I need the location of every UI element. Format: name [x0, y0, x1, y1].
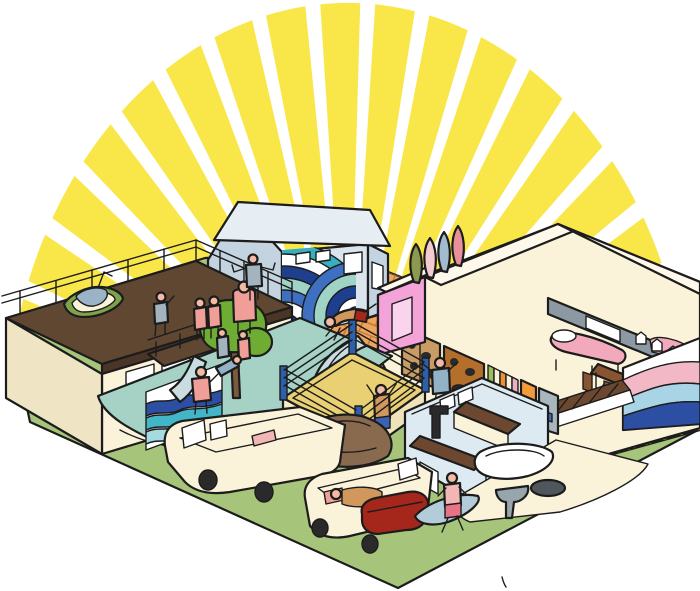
- mural-window: [296, 252, 310, 264]
- surfboard: [438, 232, 449, 272]
- wash-basin: [531, 480, 565, 496]
- van-window: [210, 420, 227, 440]
- wheel: [312, 519, 328, 537]
- surfboard: [424, 238, 435, 278]
- wheel: [255, 482, 273, 502]
- house-roof: [214, 202, 390, 246]
- compound-illustration: [0, 0, 700, 591]
- house-window: [344, 252, 362, 274]
- pillow: [552, 330, 576, 342]
- pink-doorway: [392, 297, 412, 341]
- ring-post: [280, 366, 287, 400]
- wheel: [362, 535, 378, 553]
- mural-window: [316, 250, 330, 262]
- chair: [583, 372, 592, 392]
- surfboard: [452, 226, 463, 266]
- surfboard: [410, 244, 421, 283]
- wheel: [199, 470, 217, 490]
